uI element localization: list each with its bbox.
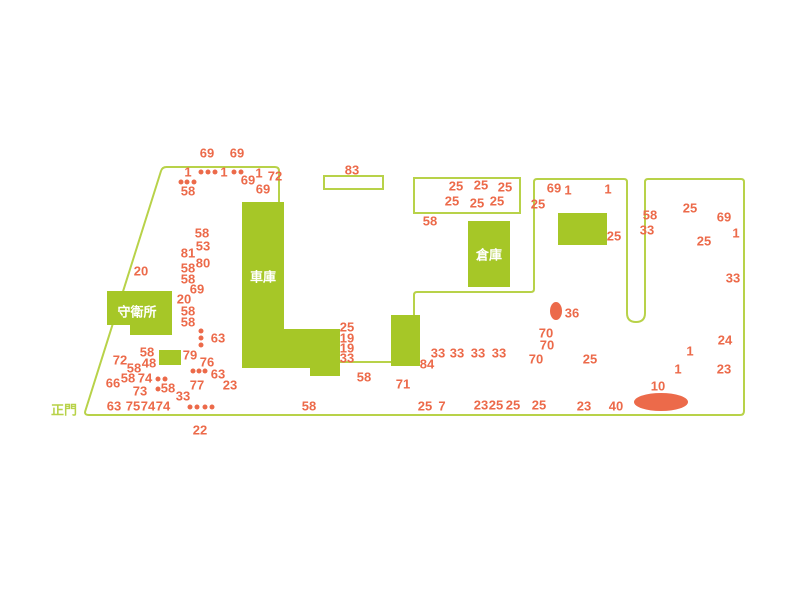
northeast-building [558, 213, 607, 245]
facility-site-map: 正門 守衛所車庫倉庫696911172696958832525252525255… [0, 0, 800, 600]
plant-dot [163, 377, 168, 382]
plant-dot [199, 343, 204, 348]
area-ellipse-36 [550, 302, 562, 320]
plant-dot [203, 369, 208, 374]
plant-dot [239, 170, 244, 175]
small-square-building [159, 350, 181, 365]
plant-dot [199, 336, 204, 341]
plant-dot [199, 170, 204, 175]
mid-building [391, 315, 420, 366]
plant-dot [203, 405, 208, 410]
plant-dot [185, 180, 190, 185]
plant-dot [195, 405, 200, 410]
plant-dot [206, 170, 211, 175]
plant-dot [213, 170, 218, 175]
plant-dot [191, 369, 196, 374]
garage-building [242, 202, 340, 376]
plant-dot [188, 405, 193, 410]
outlined-building-83 [324, 176, 383, 189]
plant-dot [156, 387, 161, 392]
map-canvas [0, 0, 800, 600]
plant-dot [156, 377, 161, 382]
guard-station-building [107, 291, 172, 335]
plant-dot [197, 369, 202, 374]
plant-dot [179, 180, 184, 185]
plant-dot [199, 329, 204, 334]
plant-dot [210, 405, 215, 410]
area-ellipse-10 [634, 393, 688, 411]
warehouse-building [468, 221, 510, 287]
outlined-building-25-block [414, 178, 520, 213]
plant-dot [232, 170, 237, 175]
plant-dot [192, 180, 197, 185]
